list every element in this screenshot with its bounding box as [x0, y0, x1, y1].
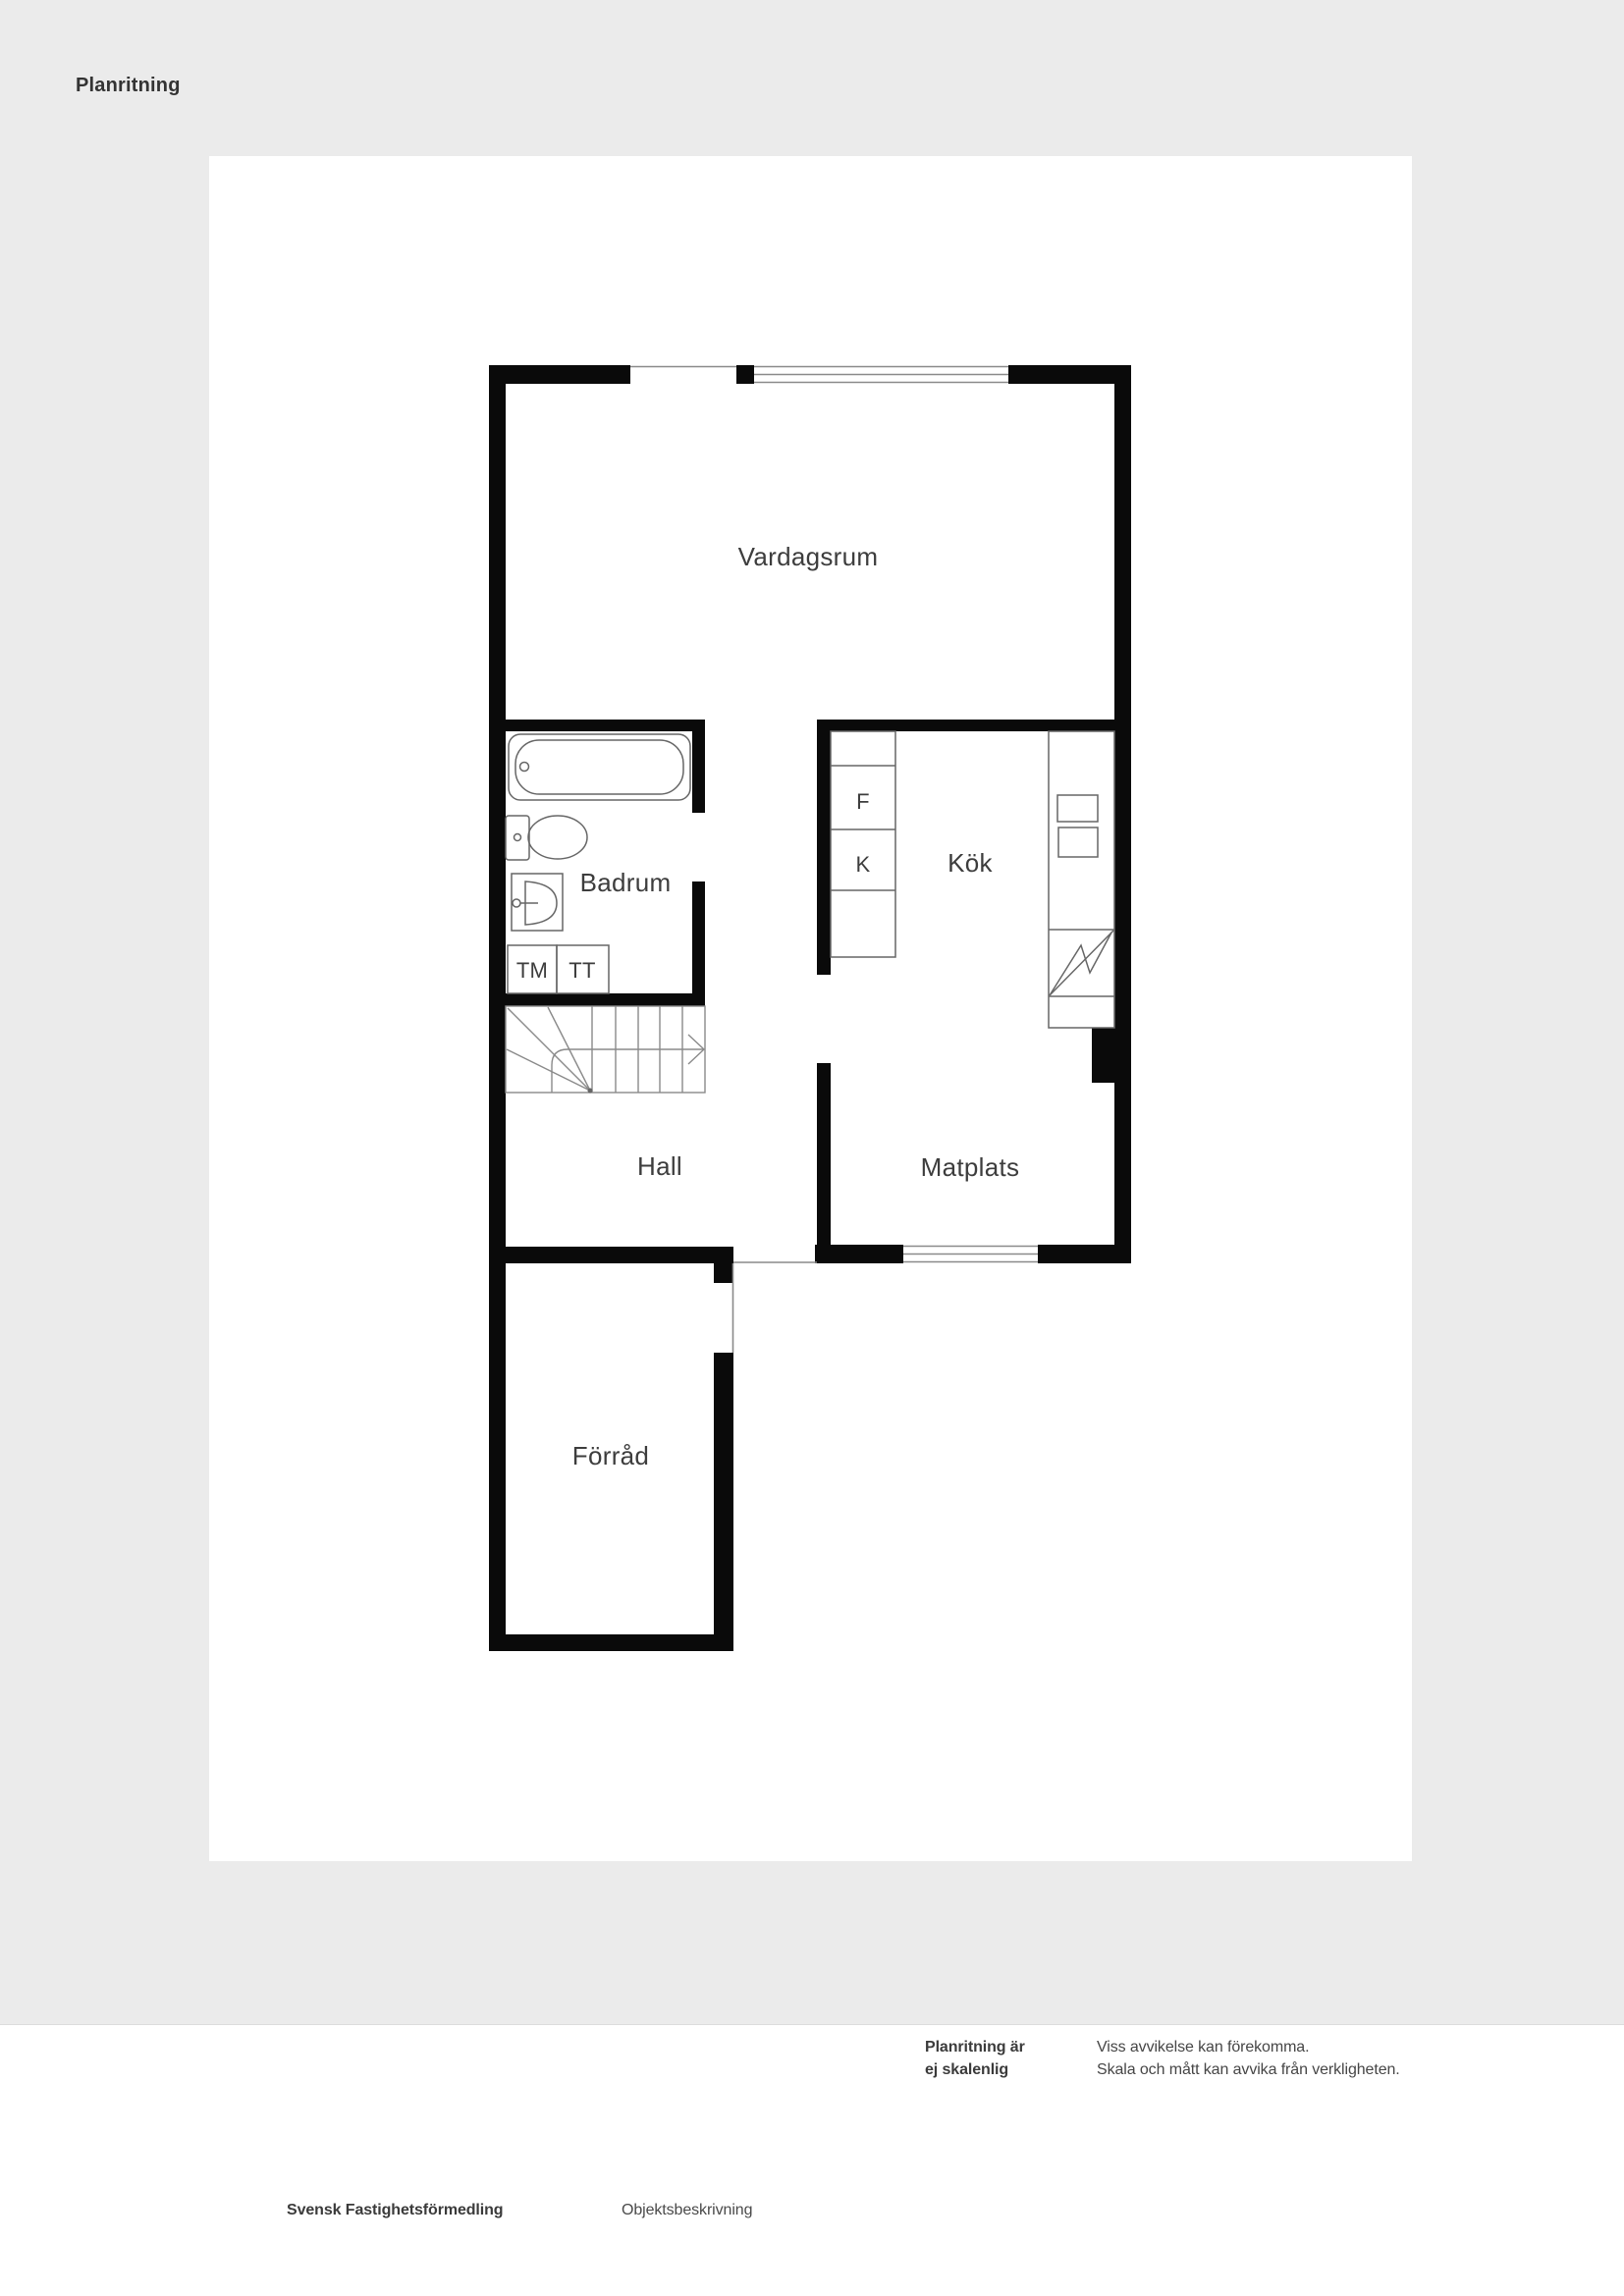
footer-brand: Svensk Fastighetsförmedling	[287, 2202, 503, 2219]
deviation-note-line2: Skala och mått kan avvika från verklighe…	[1097, 2058, 1400, 2081]
page: Planritning	[0, 0, 1624, 2296]
appliance-label-freezer: F	[856, 789, 870, 814]
room-label-storage: Förråd	[572, 1441, 649, 1470]
room-label-living: Vardagsrum	[738, 542, 879, 571]
floorplan-sheet: Vardagsrum Badrum Kök Hall Matplats Förr…	[209, 156, 1412, 1861]
scale-note-line2: ej skalenlig	[925, 2058, 1025, 2081]
stairs	[506, 1006, 705, 1094]
bathroom-sink	[512, 874, 563, 931]
room-label-hall: Hall	[637, 1151, 682, 1181]
page-title: Planritning	[76, 75, 181, 97]
bathtub	[509, 734, 690, 800]
deviation-note: Viss avvikelse kan förekomma. Skala och …	[1097, 2036, 1400, 2081]
footer-document-type: Objektsbeskrivning	[622, 2202, 752, 2219]
appliance-label-fridge: K	[856, 852, 871, 877]
room-label-bathroom: Badrum	[580, 868, 672, 897]
room-label-dining: Matplats	[921, 1152, 1020, 1182]
stove	[1050, 931, 1113, 995]
kitchen-counter-right	[1049, 731, 1114, 1028]
kitchen-cabinets-left	[831, 731, 895, 957]
appliance-label-washing-machine: TM	[516, 958, 548, 983]
deviation-note-line1: Viss avvikelse kan förekomma.	[1097, 2036, 1400, 2058]
scale-note-line1: Planritning är	[925, 2036, 1025, 2058]
floorplan-svg: Vardagsrum Badrum Kök Hall Matplats Förr…	[209, 156, 1412, 1861]
scale-note: Planritning är ej skalenlig	[925, 2036, 1025, 2081]
toilet	[506, 816, 587, 860]
room-label-kitchen: Kök	[947, 848, 993, 878]
appliance-label-tumble-dryer: TT	[568, 958, 595, 983]
